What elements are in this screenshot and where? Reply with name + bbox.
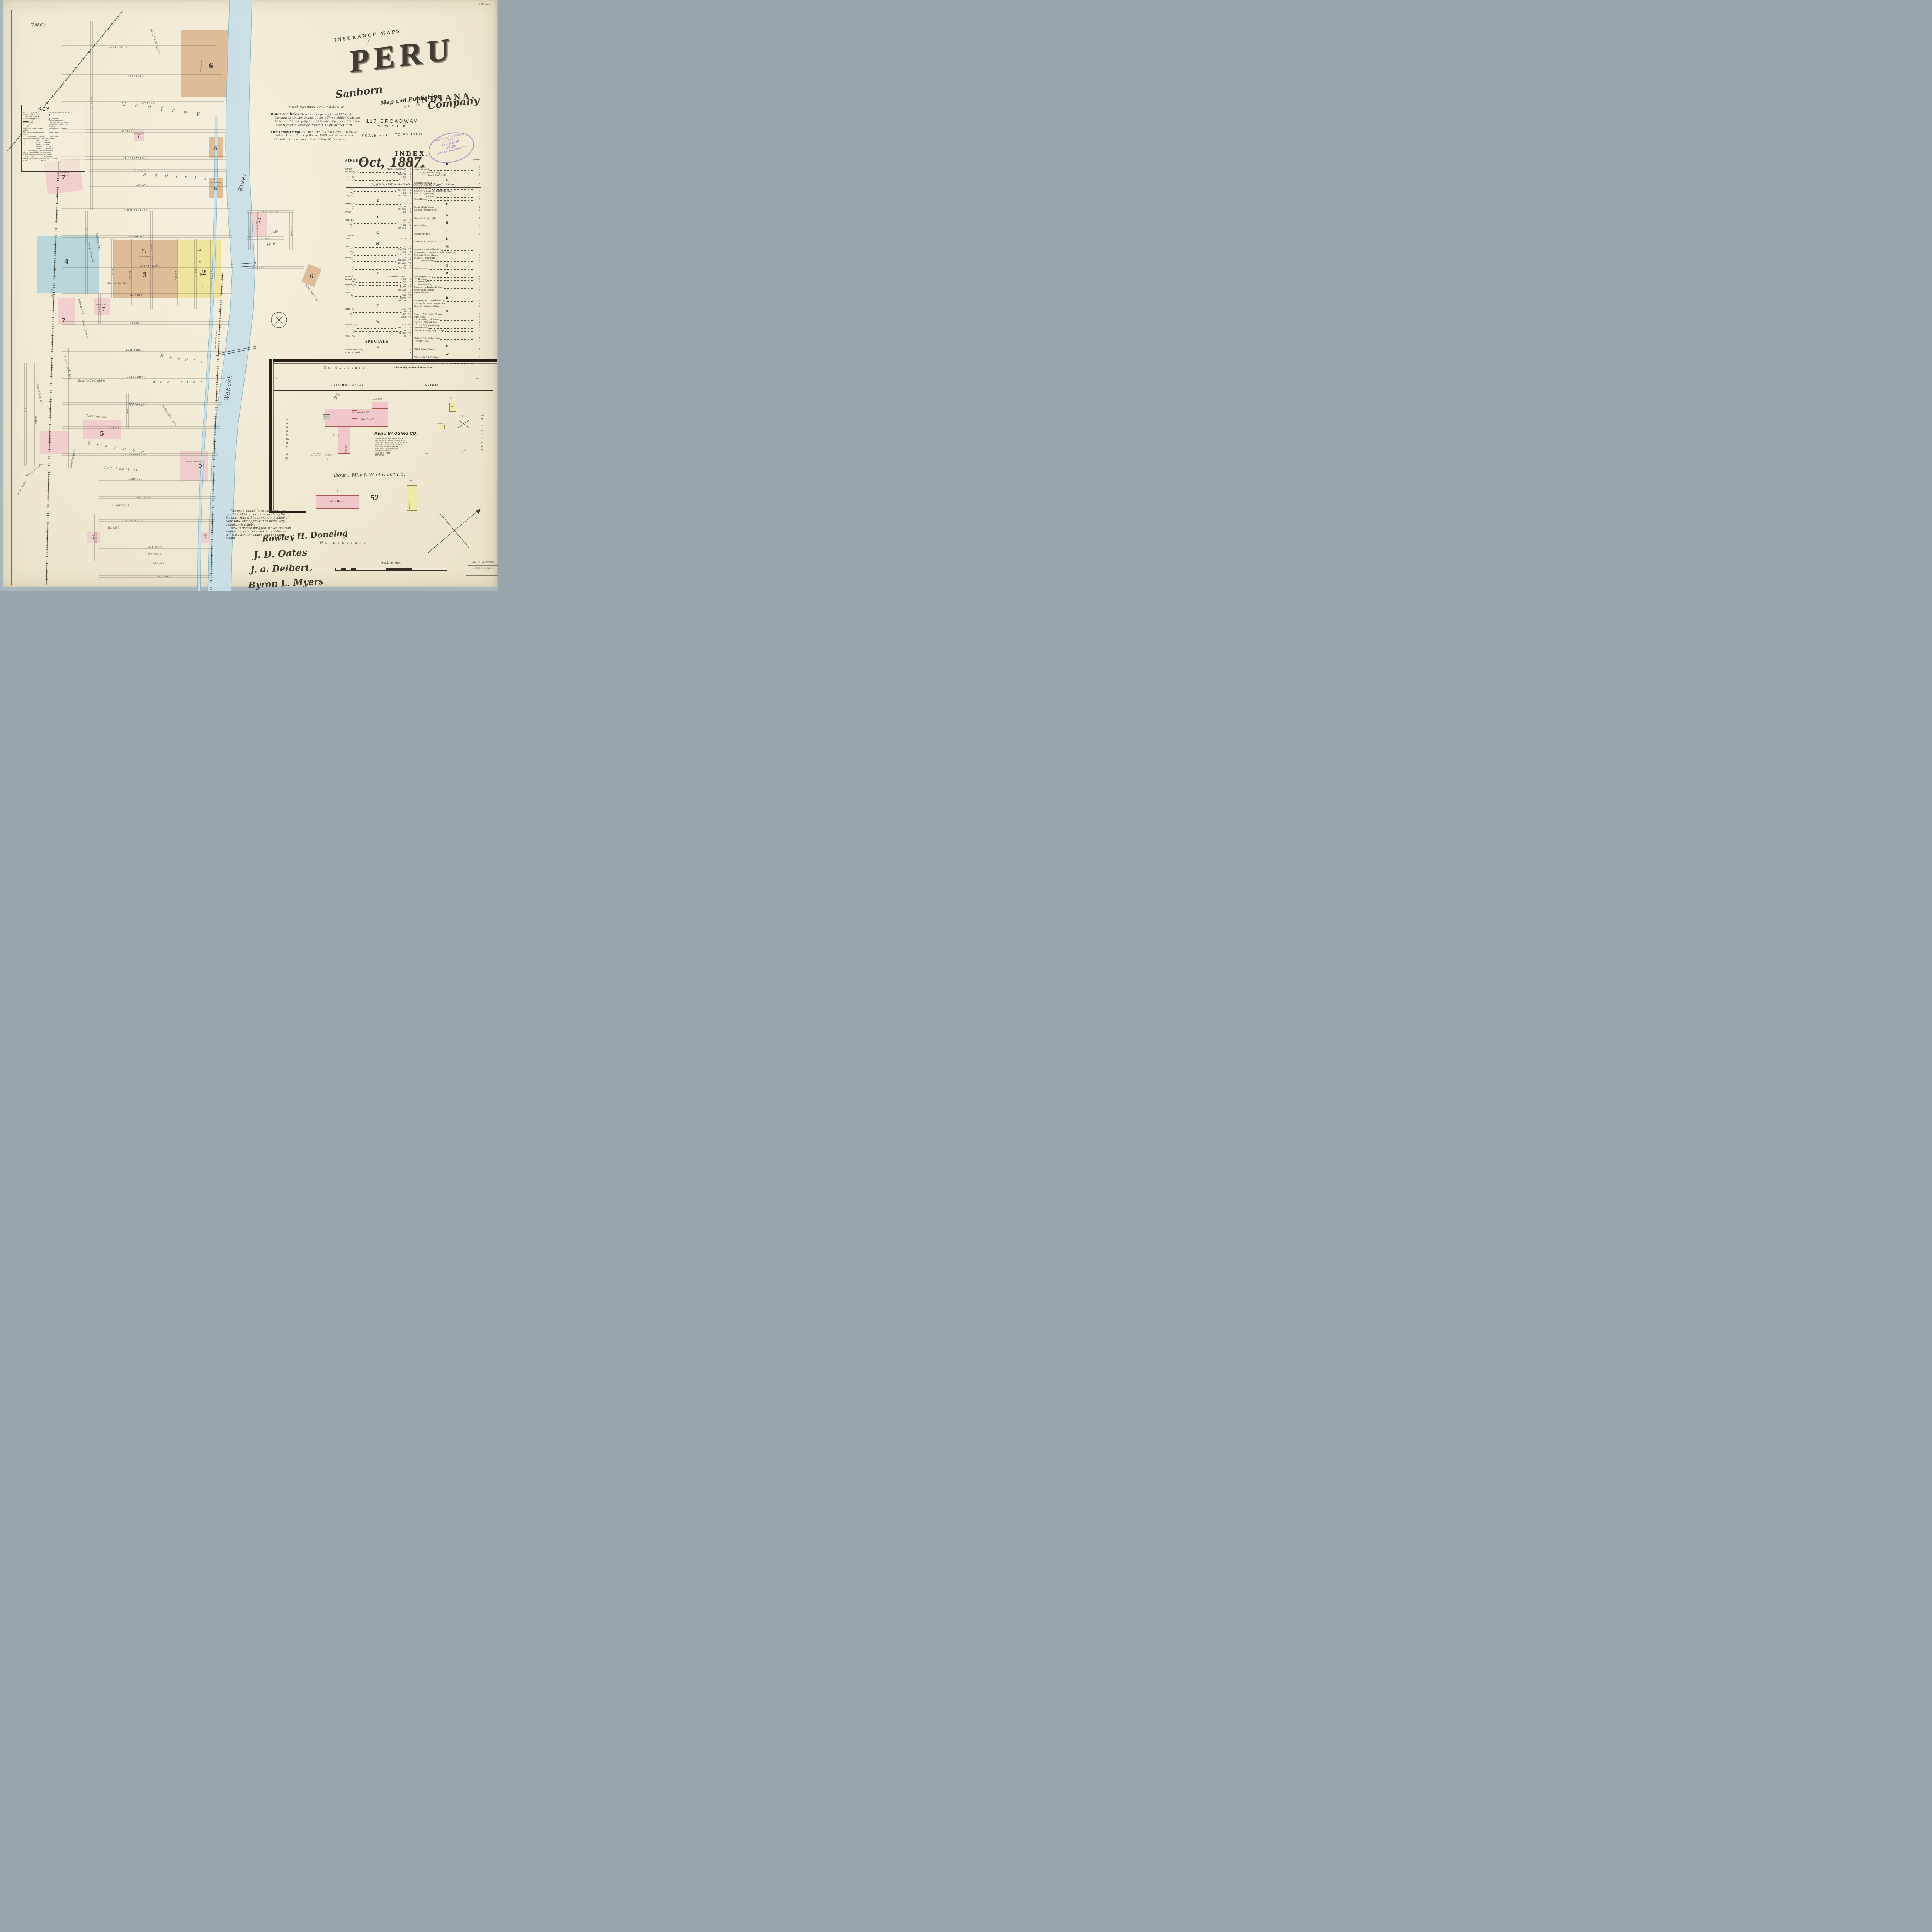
index-row: Gates, G. E., Saw Mill,7	[414, 217, 480, 220]
inset-label: 150' 2½" HOSE	[311, 455, 321, 457]
road-label-logansport: LOGANSPORT	[331, 383, 365, 388]
scanned-map-sheet: N. GODFROY S.N. BENTON S.N. WAYNE S.N. W…	[0, 0, 498, 591]
index-row: “ W.,2-130*7	[345, 206, 411, 208]
index-row: Catholic Church & School,3	[414, 185, 480, 187]
index-section-letter: R	[414, 296, 480, 299]
index-row: “ W.,1-682	[345, 192, 411, 195]
index-row: “ M. F., Machine Shop,6	[414, 324, 480, 327]
inset-sheet-number: 52	[371, 493, 379, 503]
index-row: “ “221-251*7	[345, 222, 411, 224]
inset-border-left	[269, 359, 272, 512]
index-title: INDEX.	[343, 150, 481, 158]
index-row: Ross, A. J., Machine Shop,6	[414, 305, 480, 308]
inset-label: 36'	[275, 378, 278, 380]
index-specials-column: SHEETBBarss Hotel,3Brownell Block,3 “ C.…	[412, 159, 481, 364]
fire-department: Fire Department. 50 men Paid. 2 Hose Car…	[270, 130, 362, 141]
index-row: Electric Light Works,2	[414, 206, 480, 209]
inset-building-number: 1	[327, 434, 328, 437]
index-row: Indiana M'f'g Co.,6	[414, 233, 480, 236]
index-section-letter: E	[414, 202, 480, 206]
index-row: “ “52-126*2	[345, 332, 411, 335]
inset-building-number: 9	[337, 490, 338, 492]
scale-of-feet: Scale of Feet. 504030201050100150	[335, 561, 447, 577]
publisher-address: 117 BROADWAY	[359, 118, 425, 124]
index-row: “ “51-1262	[345, 267, 411, 270]
index-row: Shirk Block,3	[414, 316, 480, 319]
key-row: WHILE LOOKING TOWARDS B'LD'G ” 1ST & 3RD…	[23, 132, 84, 136]
inset-no-exposure-top: No exposure	[323, 366, 367, 369]
index-row: Talbot, F. M., Basket Fact.,5	[414, 337, 480, 340]
peru-bagging-inset: No exposureNo exposureNo exposureLOGANSP…	[269, 359, 497, 512]
index-row: “ “214-256*7	[345, 248, 411, 251]
index-section-letter: G	[345, 231, 411, 235]
index-row: Miller, I., Roller Mills,4	[414, 257, 480, 260]
index-row: “ “269-3205	[345, 289, 411, 292]
index-row: “ “301-3365	[345, 208, 411, 211]
index-section-letter: A	[345, 345, 411, 349]
index-row: “ S.,1-503	[345, 176, 411, 179]
index-section-letter: F	[345, 215, 411, 219]
index-section-letter: W	[414, 352, 480, 356]
index-streets-column: STREETS.SHEETBBayless,Miami to Broadway4…	[343, 159, 412, 364]
index-row: Water, N.,1-487	[345, 335, 411, 338]
index-row: City Water Works,6	[414, 187, 480, 190]
scale-bar-minor-label: 10	[355, 570, 357, 571]
inset-label: PUMP	[337, 395, 340, 397]
inset-building	[323, 414, 330, 420]
well-and-pump-symbol	[334, 396, 337, 399]
index-row: “ “ “ Saw & Plan'g Mill,7	[414, 174, 480, 177]
index-section-letter: W	[345, 320, 411, 323]
peru-bagging-co-title: PERU BAGGING CO.	[374, 431, 418, 436]
index-row: Santa Fé,Franklin to River7	[345, 276, 411, 278]
index-row: “ “100-1174	[345, 327, 411, 330]
index-row: Colburn, A. R., & Co., Lumber & Coal,4	[414, 190, 480, 193]
inset-building-number: 6	[327, 458, 328, 461]
scale-bar-minor-label: 30	[345, 570, 347, 571]
scale-bar-minor-label: 50	[335, 570, 337, 571]
index-row: Seventh, W.,2-36*4	[345, 284, 411, 286]
index-row: Goodrich,4	[345, 235, 411, 238]
index-row: Cass, N.,201-2207	[345, 195, 411, 197]
index-row: National Hotel,2	[414, 268, 480, 270]
sheets-note: 7 Sheets	[478, 3, 490, 6]
index-row: Emerick's Opera House,3	[414, 209, 480, 212]
index-row: Pomeroy, H., Lumber & Coal,4	[414, 286, 480, 289]
index-row: Grant,1-2205	[345, 238, 411, 240]
map-division-stamp: Map Division Library of Congress	[466, 558, 498, 576]
index-row: “ “51-1262	[345, 179, 411, 182]
scale-bar-minor-label: 20	[350, 570, 352, 571]
inset-no-exposure-left: No exposure	[285, 417, 289, 460]
index-row: “ “50-74*7	[345, 297, 411, 300]
inset-building-number: 2	[333, 434, 334, 437]
inset-label: 36'	[476, 378, 479, 380]
index-row: Methodist Episc. Church,3	[414, 254, 480, 257]
index-section-letter: M	[345, 241, 411, 245]
index-row: Court House,3	[414, 198, 480, 201]
index-row: “ “151-225*4	[345, 262, 411, 265]
index-row: “ Woolen Mills,5	[414, 284, 480, 286]
population-line: Population 8000. Prev. Winds N.W.	[270, 105, 362, 109]
inset-label: 2	[354, 415, 354, 416]
index-row: Broadway, N.,1-743	[345, 171, 411, 173]
city-statistics: Population 8000. Prev. Winds N.W. Water …	[270, 105, 362, 144]
index-section-letter: C	[414, 178, 480, 182]
scale-bar-major-label: 50	[385, 570, 387, 571]
scale-bar-major-segment	[386, 568, 412, 570]
index-section-letter: C	[345, 182, 411, 186]
index-streets-heading: STREETS.	[345, 159, 365, 163]
index-section-letter: G	[414, 213, 480, 217]
index-section-letter: I	[414, 229, 480, 233]
inset-label: Carding 1st	[345, 445, 347, 454]
index-section-letter: B	[414, 162, 480, 166]
inset-building-number: 10	[409, 480, 412, 482]
inset-label: Mach. Shop 2	[373, 398, 384, 401]
index-row: Remmek & Hassett, Wagon Shop,2	[414, 303, 480, 305]
index-row: Spencer Block,3	[414, 327, 480, 330]
index-specials-heading: SPECIALS.	[345, 340, 411, 344]
key-line: SOLID ” ” ” METAL ”	[23, 160, 84, 162]
index-row: “ “51-77*7	[345, 286, 411, 289]
index-row: Ulrich Wagon Works,5	[414, 348, 480, 351]
index-section-letter: M	[414, 245, 480, 248]
index-row: “ “269-3205	[345, 300, 411, 303]
inset-label: WATCHM'N	[437, 423, 443, 424]
scale-bar-major-label: 150	[436, 570, 439, 571]
inset-label: Ware Hose	[330, 500, 344, 503]
inset-building-number: 3	[338, 434, 339, 437]
index-row: Alford's Feed Yard,2	[345, 349, 411, 352]
inset-label: D.H. (19')	[325, 454, 332, 456]
index-section-letter: T	[345, 304, 411, 308]
index-row: Ewing,1-624	[345, 211, 411, 214]
index-section-letter: S	[345, 271, 411, 275]
index-row: W. St. L. & P. R. R. Depot,4	[414, 356, 480, 359]
inset-building-number: 8	[462, 415, 463, 417]
index-section-letter: L	[414, 236, 480, 240]
inset-building	[439, 425, 445, 429]
inset-label: WELL &	[336, 393, 340, 395]
index-row: Raymond, W. C., Lumber & Coal,4	[414, 300, 480, 303]
index-row: “ & Dukes, Mill Estate,6	[414, 319, 480, 321]
inset-label: OFF.	[451, 406, 453, 408]
index-row: “ “ “ Ice House,7	[414, 196, 480, 198]
index-row: “ “267-3185	[345, 227, 411, 230]
index-row: Tremont Hotel,4	[414, 340, 480, 343]
index-row: Lewis, G. W., Saw Mill,7	[414, 241, 480, 243]
inset-label: Vac.	[324, 416, 327, 417]
inset-building-number: 4	[349, 399, 350, 401]
index-row: “ “100-3354	[345, 173, 411, 176]
index-row: “ W.,1-65*3	[345, 294, 411, 297]
index-row: Wabash, N.,2-74*3	[345, 324, 411, 327]
inset-x-building	[458, 420, 469, 428]
inset-label: Ware Ho.	[409, 500, 411, 509]
inset-label: ELEV	[352, 412, 355, 413]
index-row: Shearer, D. L., Grain Elevator,2	[414, 313, 480, 316]
inset-label: HOSE HO. &	[313, 453, 321, 454]
scale-bar-major-label: 100	[410, 570, 413, 571]
index-row: Brownell Block,3	[414, 169, 480, 172]
index-row: Canal Roller Mills,2	[414, 182, 480, 185]
index-section-letter: U	[414, 344, 480, 348]
index-row: “ “2-34*3	[345, 311, 411, 313]
index-row: Third, E.,1-35*2	[345, 308, 411, 311]
index-row: Second, E.,1-342	[345, 278, 411, 281]
map-key-legend: KEY No. OF STORIES 3FIRE WALL 6 IN. AB. …	[21, 105, 85, 172]
index-row: Hale's Block,3	[414, 225, 480, 228]
index-row: Presbyterian Church,3	[414, 289, 480, 292]
index-row: “ S.,2-50*3	[345, 330, 411, 332]
index-section-letter: T	[414, 333, 480, 337]
index-row: Smith, A., Wood & Coal,4	[414, 321, 480, 324]
scale-bar-title: Scale of Feet.	[335, 561, 447, 565]
scale-bar-minor-label: 40	[340, 570, 342, 571]
index-row: Barss Hotel,3	[414, 166, 480, 169]
inset-building	[338, 427, 350, 454]
index-section-letter: S	[414, 309, 480, 313]
key-row: COUNTING FROM LEFT TO RIGHTWINDOW IN 1ST…	[23, 128, 84, 132]
index-row: “ W.,1-663	[345, 251, 411, 254]
peru-bagging-co-description: SUNDAY NIGHT WATCHMAN, WATCHCLOCK. 300' …	[375, 437, 435, 456]
index-row: “ “201-4566	[345, 189, 411, 192]
index-section-letter: P	[414, 271, 480, 275]
inset-building-number: 7	[450, 397, 451, 400]
key-title: KEY	[38, 106, 84, 112]
water-facilities: Water Facilities. Reservoir, Capacity 1,…	[270, 112, 362, 127]
index-row: Bayless,Miami to Broadway4	[345, 168, 411, 171]
index-row: “ J., Wagon Shop,7	[414, 260, 480, 262]
index-row: “ W.,1-67*2	[345, 313, 411, 316]
inset-building	[372, 402, 388, 409]
inset-label: 1½" W. PIPE	[459, 449, 467, 454]
no-exposure-bottom: No exposure	[320, 541, 368, 545]
index-row: Public Schools,7	[414, 292, 480, 294]
index-row: “ “102-220*7	[345, 259, 411, 262]
index-row: Mercer & Neal, Roller Mills,2	[414, 249, 480, 252]
index-row: Miami, N.,1-743	[345, 257, 411, 259]
index-row: “ C. H., Machine Shop,7	[414, 172, 480, 174]
plate-number: (2686.)	[30, 22, 46, 27]
index-row: Main, E.,1-363	[345, 246, 411, 248]
index-row: “ “2-68*3	[345, 316, 411, 319]
signature-3: J. a. Deibert,	[250, 562, 313, 575]
index-row: Sixth, E.,1-35*3	[345, 292, 411, 294]
index-block: INDEX. STREETS.SHEETBBayless,Miami to Br…	[343, 150, 481, 345]
inset-border-top	[269, 359, 497, 362]
index-row: “ W.,1-682	[345, 281, 411, 284]
index-row: Canal, E.,1-342	[345, 187, 411, 189]
index-row: Sullivan & Eagle, Wagon Shop,2	[414, 330, 480, 332]
index-row: Mergentheim, Sterne & Strouse, Woolen Mi…	[414, 252, 480, 254]
index-row: “ S.,1-503	[345, 265, 411, 267]
road-label-road: ROAD	[425, 383, 439, 388]
inset-no-exposure-right: No exposure	[480, 413, 484, 457]
index-section-letter: N	[414, 264, 480, 267]
index-row: “ “270-318*5	[345, 254, 411, 257]
publisher-city: NEW YORK	[359, 124, 425, 128]
index-section-letter: B	[345, 164, 411, 168]
index-row: American Hotel,4	[345, 352, 411, 354]
logansport-road-south-line	[274, 390, 493, 391]
logansport-road-north-line	[274, 382, 493, 382]
index-row: Fifth, E.,1-363	[345, 219, 411, 222]
description-line: EMPLOYED.	[375, 454, 435, 456]
about-one-mile-note: About 1 Mile N.W. of Court Ho.	[332, 471, 405, 478]
index-row: Eighth, E.,1-764	[345, 203, 411, 206]
index-row: “ W.,1-683	[345, 224, 411, 227]
index-section-letter: E	[345, 199, 411, 202]
index-section-letter: H	[414, 221, 480, 224]
